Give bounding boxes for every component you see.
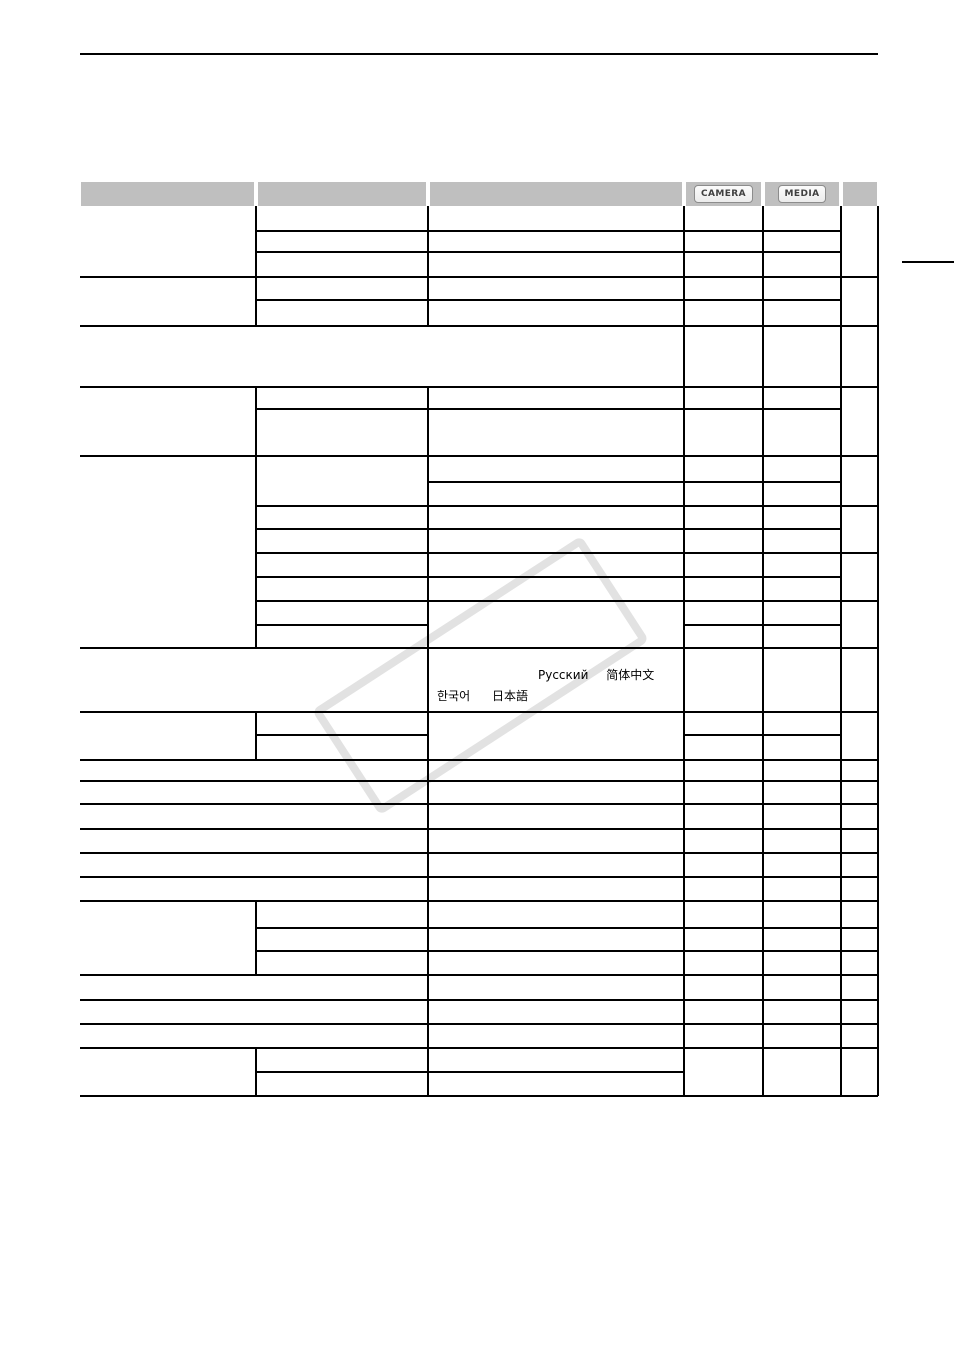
camera-mode-badge: CAMERA — [694, 185, 753, 203]
table-line-horizontal — [80, 876, 878, 878]
table-line-horizontal — [256, 552, 878, 554]
table-line-vertical — [255, 387, 257, 648]
language-japanese: 日本語 — [492, 689, 528, 703]
table-line-vertical — [255, 1048, 257, 1096]
table-line-horizontal — [80, 1047, 878, 1049]
table-line-horizontal — [256, 408, 841, 410]
table-line-horizontal — [256, 230, 841, 232]
table-line-horizontal — [256, 576, 841, 578]
table-line-vertical — [255, 712, 257, 760]
table-line-horizontal — [80, 828, 878, 830]
table-line-horizontal — [80, 276, 878, 278]
table-line-horizontal — [80, 999, 878, 1001]
language-options-line2: 한국어 日本語 — [437, 689, 528, 703]
table-line-horizontal — [80, 780, 878, 782]
table-line-horizontal — [256, 505, 878, 507]
table-line-horizontal — [80, 852, 878, 854]
table-line-horizontal — [80, 647, 878, 649]
header-cell-media: MEDIA — [765, 182, 839, 206]
table-line-horizontal — [80, 711, 878, 713]
table-line-horizontal — [80, 759, 878, 761]
language-options-line1: Русский 简体中文 — [538, 668, 654, 682]
table-line-vertical — [427, 206, 429, 326]
header-cell-submenu — [258, 182, 426, 206]
table-line-horizontal — [80, 386, 878, 388]
table-line-horizontal — [80, 455, 878, 457]
table-line-horizontal — [256, 528, 841, 530]
table-line-horizontal — [80, 803, 878, 805]
table-line-horizontal — [428, 481, 841, 483]
table-line-horizontal — [256, 251, 841, 253]
language-korean: 한국어 — [437, 689, 470, 703]
table-line-horizontal — [256, 1071, 684, 1073]
header-cell-menu — [81, 182, 254, 206]
manual-page: CAMERA MEDIA Русский 简体中文 한국어 日本語 — [0, 0, 954, 1348]
table-line-vertical — [840, 206, 842, 1096]
header-cell-options — [430, 182, 682, 206]
media-mode-badge: MEDIA — [778, 185, 827, 203]
table-line-vertical — [762, 206, 764, 1096]
table-line-horizontal — [256, 600, 878, 602]
table-line-horizontal — [256, 624, 428, 626]
table-line-vertical — [877, 206, 879, 1096]
table-line-vertical — [683, 206, 685, 1096]
table-line-horizontal — [80, 1095, 878, 1097]
menu-options-table: CAMERA MEDIA Русский 简体中文 한국어 日本語 — [0, 0, 954, 1348]
header-cell-camera: CAMERA — [686, 182, 761, 206]
table-line-horizontal — [80, 325, 878, 327]
table-line-horizontal — [80, 1023, 878, 1025]
table-line-horizontal — [256, 927, 878, 929]
table-line-vertical — [255, 206, 257, 326]
table-line-vertical — [427, 387, 429, 1096]
table-line-horizontal — [256, 734, 428, 736]
language-russian: Русский — [538, 668, 588, 682]
table-line-horizontal — [80, 974, 878, 976]
language-simplified-chinese: 简体中文 — [606, 668, 654, 682]
table-line-vertical — [255, 901, 257, 975]
table-line-horizontal — [80, 900, 878, 902]
table-line-horizontal — [256, 299, 841, 301]
table-line-horizontal — [256, 950, 878, 952]
header-cell-page-ref — [843, 182, 877, 206]
